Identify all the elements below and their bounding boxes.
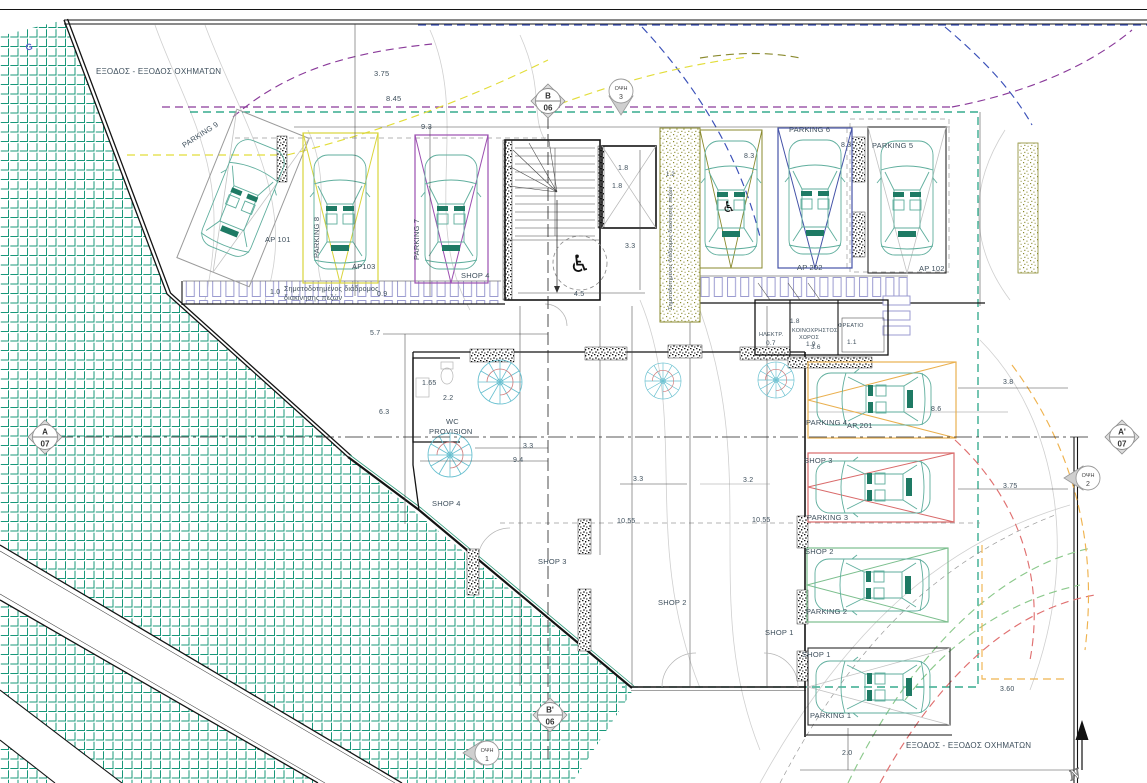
sidewalk-hatch	[0, 20, 633, 783]
section-sheet: 06	[544, 104, 553, 113]
parking-bay-accessible: ♿	[700, 130, 762, 268]
section-letter: A	[42, 428, 48, 437]
elevator-shaft	[602, 146, 656, 228]
section-sheet: 06	[546, 718, 555, 727]
pedestrian-crossing-right	[660, 276, 985, 335]
parking-bay-8	[303, 133, 378, 283]
view-number: 2	[1086, 481, 1090, 488]
north-label: N	[1066, 766, 1083, 783]
section-letter: A'	[1118, 428, 1126, 437]
floor-plan-drawing: ♿	[0, 0, 1147, 783]
section-letter: B	[545, 92, 551, 101]
parking-bay-5	[868, 127, 946, 273]
section-sheet: 07	[1118, 440, 1127, 449]
view-marker-2: ΟΨΗ 2	[1064, 466, 1100, 490]
view-number: 1	[485, 756, 489, 763]
view-marker-3: ΟΨΗ 3	[609, 79, 633, 115]
accessible-icon: ♿	[569, 250, 591, 278]
section-letter: B'	[546, 706, 554, 715]
parking-bay-4	[808, 362, 956, 438]
floor-plan-canvas: ♿	[0, 0, 1147, 783]
pedestrian-crossing-left	[183, 281, 505, 304]
section-sheet: 07	[41, 440, 50, 449]
accessible-bay-icon: ♿	[722, 198, 735, 216]
parking-bay-3	[808, 453, 954, 522]
section-marker-b-top: B 06	[531, 84, 565, 118]
view-number: 3	[619, 94, 623, 101]
wc-room	[413, 358, 460, 442]
spiral-stairs	[428, 360, 794, 477]
view-name: ΟΨΗ	[481, 748, 494, 754]
section-marker-a-right: A' 07	[1105, 420, 1139, 454]
stair-core: ♿	[505, 140, 607, 300]
parking-bay-2	[807, 548, 948, 622]
parking-bay-6	[778, 128, 852, 268]
view-name: ΟΨΗ	[615, 86, 628, 92]
parking-bay-9	[177, 109, 309, 287]
view-name: ΟΨΗ	[1082, 473, 1095, 479]
